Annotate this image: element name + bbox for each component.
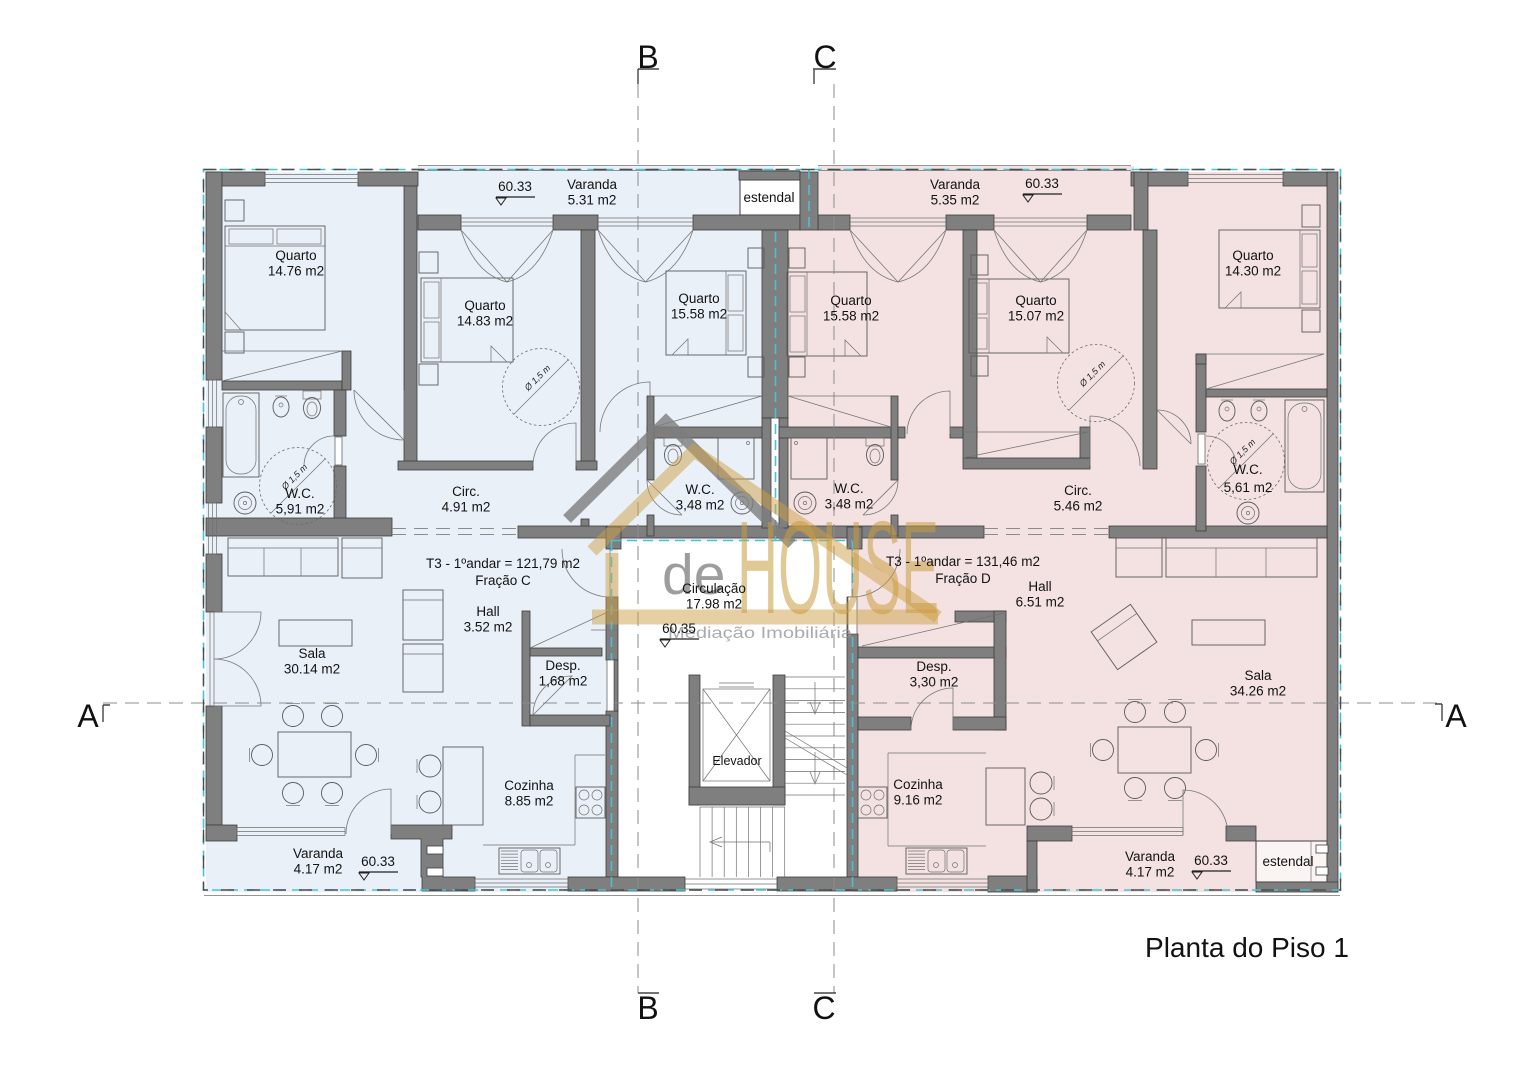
- svg-text:60.33: 60.33: [1025, 176, 1059, 191]
- svg-text:15.07 m2: 15.07 m2: [1008, 309, 1064, 324]
- svg-text:4.91 m2: 4.91 m2: [442, 500, 491, 515]
- svg-text:C: C: [813, 39, 836, 75]
- svg-text:Fração C: Fração C: [475, 573, 531, 588]
- svg-text:W.C.: W.C.: [285, 486, 314, 501]
- svg-text:A: A: [77, 698, 99, 734]
- svg-text:Quarto: Quarto: [830, 293, 871, 308]
- svg-text:Circ.: Circ.: [452, 484, 480, 499]
- svg-text:Varanda: Varanda: [293, 846, 344, 861]
- svg-text:14.83 m2: 14.83 m2: [457, 314, 513, 329]
- svg-text:17.98 m2: 17.98 m2: [686, 597, 742, 612]
- svg-text:Desp.: Desp.: [545, 658, 580, 673]
- svg-text:T3 - 1ºandar = 121,79 m2: T3 - 1ºandar = 121,79 m2: [426, 556, 580, 571]
- svg-text:60.33: 60.33: [1194, 853, 1228, 868]
- svg-text:W.C.: W.C.: [685, 482, 714, 497]
- svg-text:C: C: [812, 990, 835, 1026]
- svg-text:3.52 m2: 3.52 m2: [464, 620, 513, 635]
- svg-text:5,91 m2: 5,91 m2: [276, 502, 325, 517]
- svg-text:W.C.: W.C.: [1233, 462, 1262, 477]
- svg-text:Quarto: Quarto: [1232, 248, 1273, 263]
- svg-text:B: B: [637, 990, 658, 1026]
- svg-text:Varanda: Varanda: [567, 177, 618, 192]
- svg-text:14.30 m2: 14.30 m2: [1225, 264, 1281, 279]
- svg-text:3,48 m2: 3,48 m2: [825, 497, 874, 512]
- svg-text:W.C.: W.C.: [834, 481, 863, 496]
- svg-text:14.76 m2: 14.76 m2: [268, 264, 324, 279]
- svg-text:Circulação: Circulação: [682, 581, 746, 596]
- svg-text:Sala: Sala: [298, 646, 326, 661]
- svg-text:estendal: estendal: [743, 190, 794, 205]
- svg-text:5.35 m2: 5.35 m2: [931, 193, 980, 208]
- svg-text:Fração D: Fração D: [935, 571, 991, 586]
- svg-text:Quarto: Quarto: [275, 248, 316, 263]
- svg-text:Desp.: Desp.: [916, 659, 951, 674]
- svg-text:6.51 m2: 6.51 m2: [1016, 595, 1065, 610]
- svg-text:Varanda: Varanda: [930, 177, 981, 192]
- svg-text:Cozinha: Cozinha: [504, 778, 554, 793]
- svg-text:T3 - 1ºandar = 131,46 m2: T3 - 1ºandar = 131,46 m2: [886, 554, 1040, 569]
- svg-text:estendal: estendal: [1262, 854, 1313, 869]
- svg-text:3,48 m2: 3,48 m2: [676, 498, 725, 513]
- svg-text:Hall: Hall: [1028, 579, 1051, 594]
- svg-text:Cozinha: Cozinha: [893, 777, 943, 792]
- svg-text:8.85 m2: 8.85 m2: [505, 794, 554, 809]
- svg-text:60.35: 60.35: [662, 621, 696, 636]
- svg-text:4.17 m2: 4.17 m2: [294, 862, 343, 877]
- svg-text:60.33: 60.33: [498, 179, 532, 194]
- svg-text:15.58 m2: 15.58 m2: [823, 309, 879, 324]
- svg-text:Sala: Sala: [1244, 668, 1272, 683]
- svg-text:5.31 m2: 5.31 m2: [568, 193, 617, 208]
- svg-text:9.16 m2: 9.16 m2: [894, 793, 943, 808]
- svg-text:Circ.: Circ.: [1064, 483, 1092, 498]
- svg-text:34.26 m2: 34.26 m2: [1230, 684, 1286, 699]
- svg-text:15.58 m2: 15.58 m2: [671, 307, 727, 322]
- svg-text:5,61 m2: 5,61 m2: [1224, 480, 1273, 495]
- svg-text:1,68 m2: 1,68 m2: [539, 674, 588, 689]
- svg-text:Varanda: Varanda: [1125, 849, 1176, 864]
- svg-text:30.14 m2: 30.14 m2: [284, 662, 340, 677]
- svg-text:4.17 m2: 4.17 m2: [1126, 865, 1175, 880]
- svg-text:3,30 m2: 3,30 m2: [910, 675, 959, 690]
- svg-text:Quarto: Quarto: [464, 298, 505, 313]
- svg-text:A: A: [1445, 698, 1467, 734]
- svg-text:Hall: Hall: [476, 604, 499, 619]
- svg-text:Elevador: Elevador: [712, 754, 761, 768]
- svg-text:Quarto: Quarto: [1015, 293, 1056, 308]
- svg-text:Planta do Piso 1: Planta do Piso 1: [1145, 932, 1349, 963]
- svg-text:Quarto: Quarto: [678, 291, 719, 306]
- svg-text:B: B: [637, 39, 658, 75]
- svg-text:5.46 m2: 5.46 m2: [1054, 499, 1103, 514]
- svg-text:60.33: 60.33: [361, 854, 395, 869]
